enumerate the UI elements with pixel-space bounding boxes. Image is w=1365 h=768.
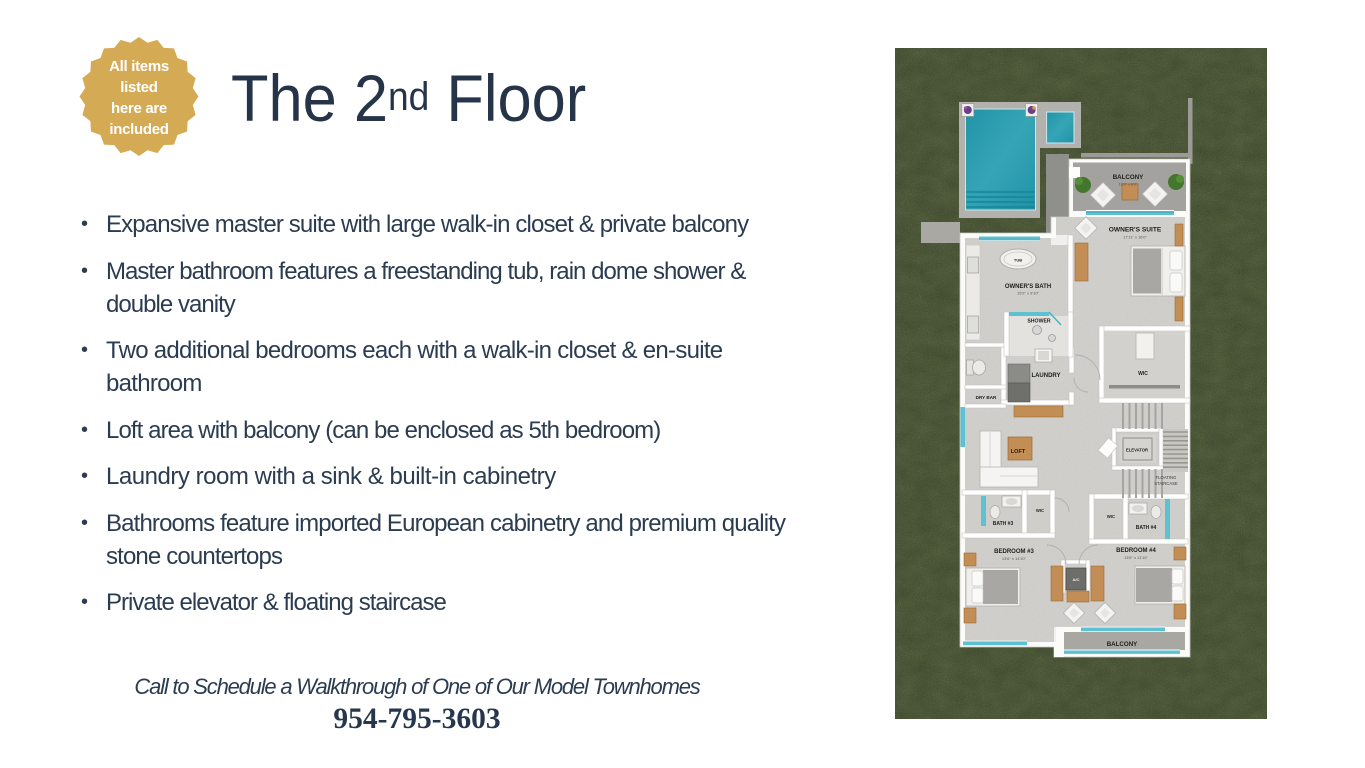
svg-text:BATH #3: BATH #3 [993,521,1014,527]
svg-text:BALCONY: BALCONY [1107,641,1138,648]
svg-text:WIC: WIC [1138,371,1148,377]
svg-text:TUB: TUB [1014,258,1022,263]
svg-text:A/C: A/C [1073,577,1080,582]
svg-text:BATH #4: BATH #4 [1136,525,1157,531]
svg-text:13'6" x 14'10": 13'6" x 14'10" [1002,556,1027,561]
svg-text:WIC: WIC [1107,514,1115,519]
svg-text:17'11" x 16'0": 17'11" x 16'0" [1123,235,1147,240]
svg-text:WIC: WIC [1036,508,1044,513]
svg-text:OWNER'S SUITE: OWNER'S SUITE [1109,227,1162,234]
svg-text:BEDROOM #3: BEDROOM #3 [994,549,1034,555]
svg-text:OWNER'S BATH: OWNER'S BATH [1005,284,1051,290]
svg-text:STAIRCASE: STAIRCASE [1154,481,1178,486]
svg-text:BALCONY: BALCONY [1113,174,1144,181]
svg-text:included: included [109,121,168,138]
svg-text:listed: listed [120,79,158,96]
svg-text:13'6" x 11'10": 13'6" x 11'10" [1124,555,1148,560]
svg-text:All items: All items [109,58,169,75]
svg-text:16'0" x 6'0": 16'0" x 6'0" [1119,183,1138,187]
svg-text:BEDROOM #4: BEDROOM #4 [1116,548,1156,554]
svg-text:15'2" x 9'10": 15'2" x 9'10" [1017,291,1040,296]
svg-text:LOFT: LOFT [1011,449,1026,455]
svg-text:DRY BAR: DRY BAR [976,395,997,400]
svg-text:FLOATING: FLOATING [1156,475,1177,480]
svg-text:LAUNDRY: LAUNDRY [1031,373,1060,379]
svg-text:here are: here are [111,100,167,117]
svg-text:ELEVATOR: ELEVATOR [1126,448,1148,453]
svg-text:SHOWER: SHOWER [1027,319,1051,325]
